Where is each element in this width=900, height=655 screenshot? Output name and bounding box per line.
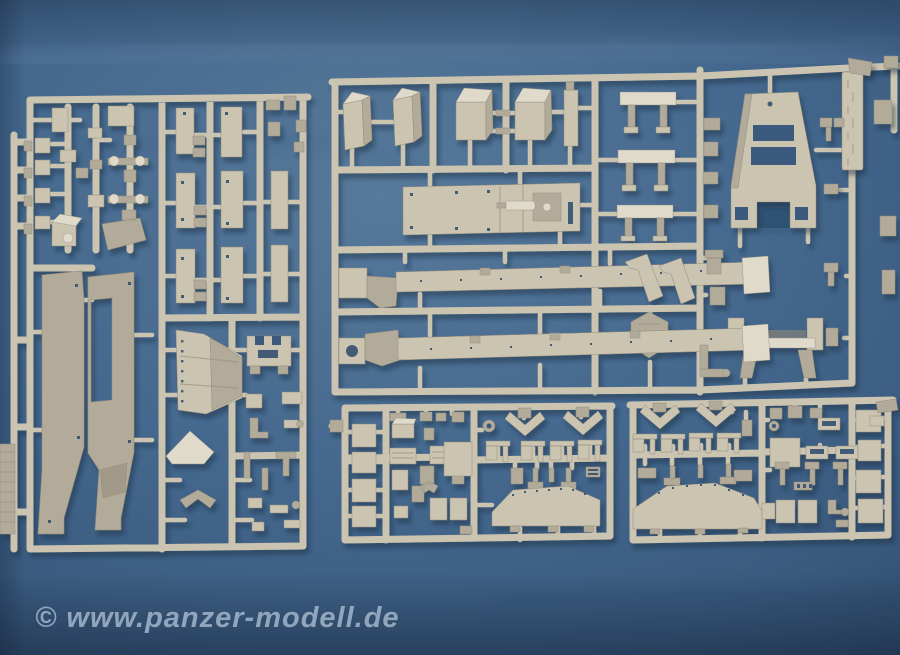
omega-clamp-hole [487, 424, 492, 429]
small-box-top [392, 418, 416, 424]
small-fitting-parts [770, 406, 822, 419]
watermark-text: © www.panzer-modell.de [35, 602, 400, 634]
textured-track-part [0, 444, 15, 534]
linkage-disc [135, 194, 145, 204]
gun-barrel [505, 201, 535, 210]
linkage-disc [109, 194, 119, 204]
linkage-disc [135, 156, 145, 166]
small-box-part [392, 424, 414, 438]
small-disc-part [841, 508, 849, 516]
square-plate-part [444, 442, 472, 476]
small-fitting-part [870, 416, 884, 426]
gantry-top-hole [768, 102, 773, 107]
thin-plate-tab [566, 82, 574, 90]
gun-mount-detail [543, 203, 551, 211]
linkage-disc [109, 156, 119, 166]
small-ball-end [722, 369, 730, 377]
small-disc-part [292, 501, 300, 509]
photo-canvas: © www.panzer-modell.de © www.panzer-mode… [0, 0, 900, 655]
toothed-part-notches [797, 484, 812, 488]
linkage-disc [63, 233, 73, 243]
omega-clamp-hole [772, 424, 776, 428]
frame-rail-end-bracket [339, 268, 367, 298]
photo-model-kit-sprues: © www.panzer-modell.de © www.panzer-mode… [0, 0, 900, 655]
frame-rail2-hole [346, 345, 358, 357]
gantry-arch-shadow [757, 202, 790, 228]
edge-tab-part [330, 420, 343, 432]
frame-rail-end-plate [742, 324, 770, 362]
small-disc-part [297, 421, 304, 428]
frame-rail-end-plate [742, 256, 770, 294]
hook-part [742, 420, 752, 436]
notched-plate-slot [258, 350, 278, 358]
frame-rail2-hook [365, 330, 400, 366]
thin-plate-part [564, 90, 578, 146]
gun-barrel-tip [497, 203, 506, 208]
